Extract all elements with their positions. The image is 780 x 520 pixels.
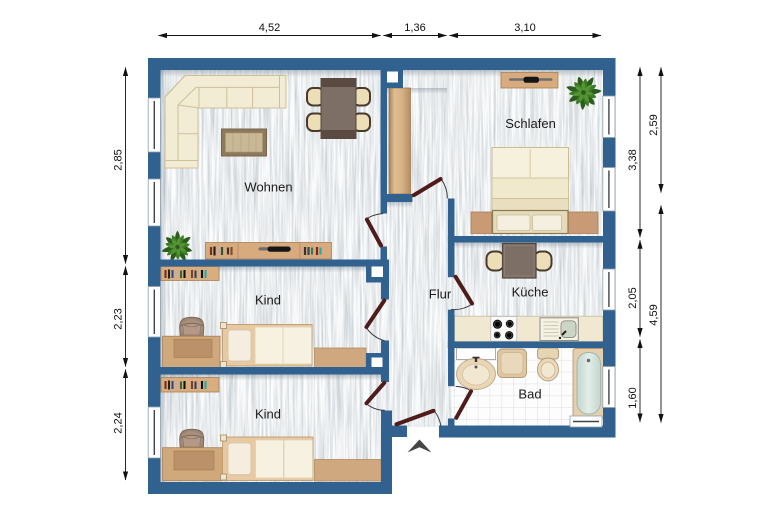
svg-text:Bad: Bad [518,387,541,402]
svg-text:2,05: 2,05 [627,287,639,308]
svg-text:Kind: Kind [255,407,281,422]
svg-text:4,59: 4,59 [648,304,660,325]
svg-text:1,60: 1,60 [627,387,639,408]
svg-text:1,36: 1,36 [404,22,425,34]
svg-text:3,38: 3,38 [627,149,639,170]
svg-text:2,24: 2,24 [113,412,125,433]
svg-text:Küche: Küche [512,285,549,300]
svg-text:2,85: 2,85 [113,149,125,170]
svg-text:Kind: Kind [255,293,281,308]
svg-text:Schlafen: Schlafen [505,116,556,131]
svg-text:4,52: 4,52 [259,22,280,34]
svg-text:Wohnen: Wohnen [244,180,292,195]
svg-text:Flur: Flur [429,287,452,302]
svg-text:2,23: 2,23 [113,308,125,329]
svg-text:2,59: 2,59 [648,114,660,135]
svg-text:3,10: 3,10 [514,22,535,34]
